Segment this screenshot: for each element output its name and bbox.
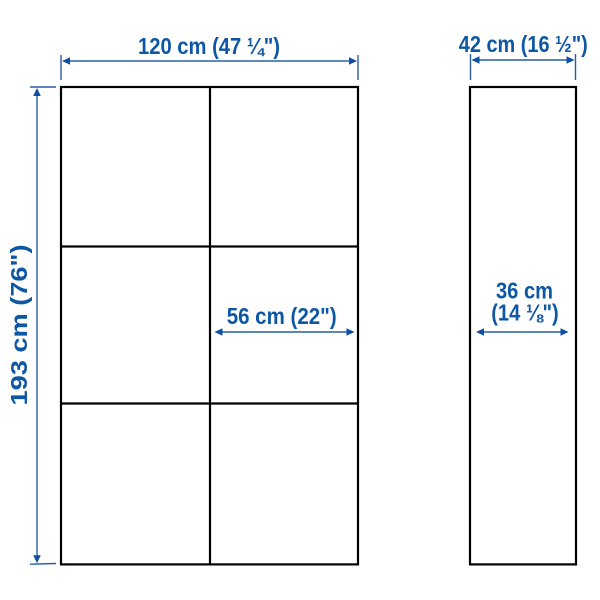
svg-text:42 cm (16 ½"): 42 cm (16 ½") — [459, 31, 588, 57]
svg-text:120 cm (47 ¼"): 120 cm (47 ¼") — [138, 33, 280, 59]
svg-text:(14 ⅛"): (14 ⅛") — [491, 300, 559, 326]
svg-text:56 cm (22"): 56 cm (22") — [227, 303, 337, 329]
svg-text:193 cm (76"): 193 cm (76") — [6, 245, 32, 406]
